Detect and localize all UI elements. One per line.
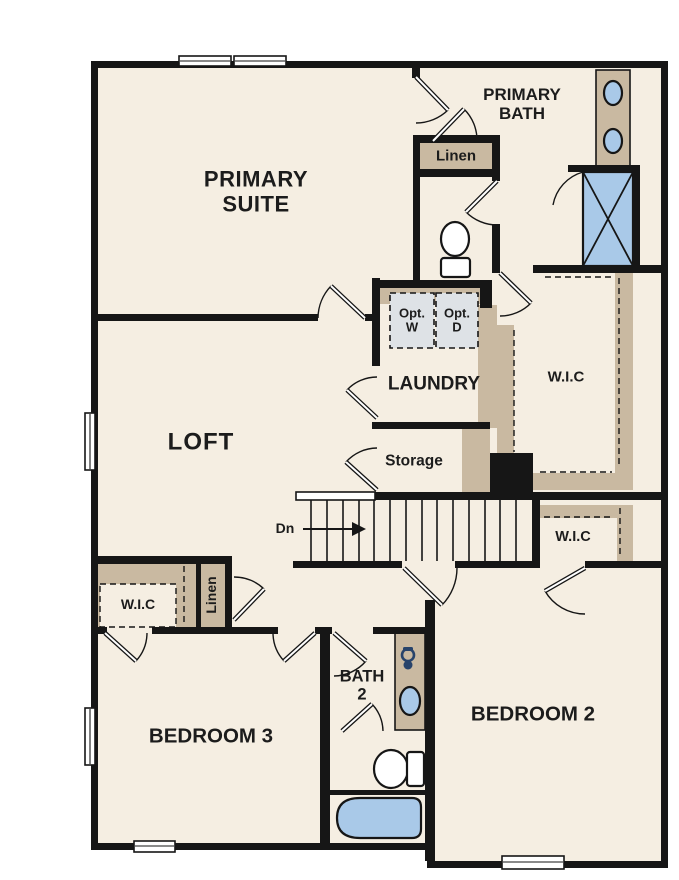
sink-icon <box>604 129 622 153</box>
room-label-wic-hall: W.I.C <box>555 529 590 545</box>
window <box>134 841 175 852</box>
room-label-storage: Storage <box>385 452 443 469</box>
room-label-bedroom2: BEDROOM 2 <box>471 704 595 727</box>
laundry-side-cabinet <box>478 305 497 428</box>
floor-plan-drawing <box>0 0 679 880</box>
wic-shelf-left <box>497 325 514 455</box>
tub-partition <box>330 790 425 795</box>
sink-icon <box>400 687 420 715</box>
room-label-wic-primary: W.I.C <box>548 370 585 387</box>
room-label-linen-lower: Linen <box>204 576 220 613</box>
room-label-loft: LOFT <box>168 430 235 457</box>
storage-shelf <box>462 428 490 492</box>
chase <box>490 453 533 492</box>
wic-shelf-right <box>615 273 633 490</box>
sink-icon <box>604 81 622 105</box>
window <box>85 708 95 765</box>
room-label-wic-bedroom3: W.I.C <box>121 597 155 613</box>
stair-railing <box>296 492 375 500</box>
window <box>179 56 231 66</box>
label-opt-washer: Opt. W <box>399 306 425 333</box>
room-label-primary-suite: PRIMARY SUITE <box>204 167 308 216</box>
room-label-linen-upper: Linen <box>436 149 476 166</box>
floor-plan: PRIMARY SUITE PRIMARY BATH Linen LOFT LA… <box>0 0 679 880</box>
room-label-bedroom3: BEDROOM 3 <box>149 726 273 749</box>
wic-shelf-bottom <box>533 473 615 490</box>
room-label-laundry: LAUNDRY <box>388 373 480 394</box>
toilet-tank-bath2 <box>407 752 424 786</box>
window <box>234 56 286 66</box>
toilet-tank-primary <box>441 258 470 277</box>
room-label-bath2: BATH 2 <box>340 668 385 705</box>
bathtub-fixture <box>337 798 421 838</box>
stairs-down-label: Dn <box>276 521 295 537</box>
window <box>502 856 564 869</box>
window <box>85 413 95 470</box>
label-opt-dryer: Opt. D <box>444 306 470 333</box>
toilet-bowl-primary <box>441 222 469 256</box>
room-label-primary-bath: PRIMARY BATH <box>483 85 561 123</box>
toilet-bowl-bath2 <box>374 750 408 788</box>
